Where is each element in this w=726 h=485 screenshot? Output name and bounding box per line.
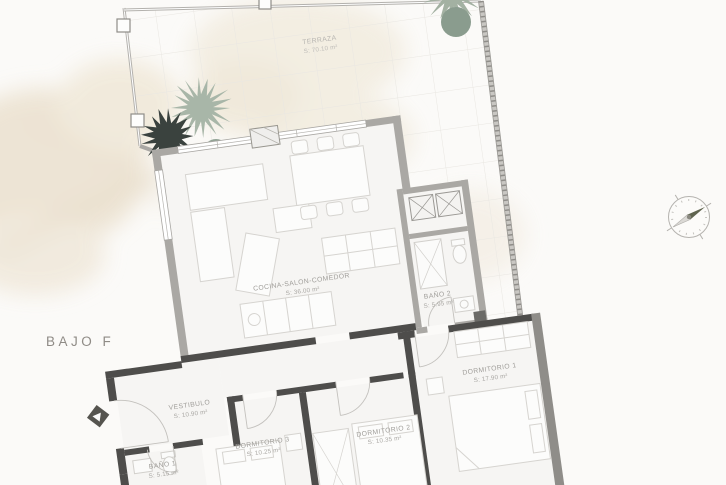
railing-post xyxy=(131,114,144,127)
floor-plan-page: TERRAZA S: 70.10 m² COCINA-SALON-COMEDOR… xyxy=(0,0,726,485)
unit-label: BAJO F xyxy=(46,334,114,349)
nightstand xyxy=(426,377,444,395)
dining-table xyxy=(290,146,370,206)
sage-bush-icon xyxy=(441,7,471,37)
facade-pillar xyxy=(250,125,280,148)
pillow xyxy=(222,449,245,464)
floor-plan-canvas: TERRAZA S: 70.10 m² COCINA-SALON-COMEDOR… xyxy=(0,0,726,485)
railing-post xyxy=(117,19,130,32)
railing-post xyxy=(259,0,271,9)
